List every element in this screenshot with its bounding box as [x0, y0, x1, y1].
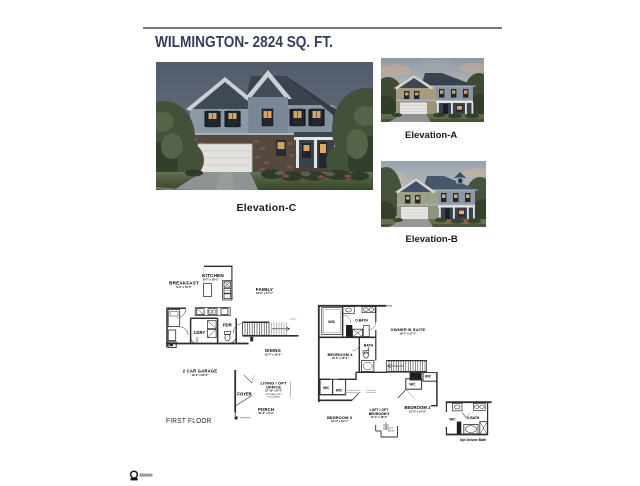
svg-text:DINING: DINING: [265, 348, 281, 353]
svg-text:WIC: WIC: [409, 382, 416, 386]
svg-text:BEDROOM 2: BEDROOM 2: [404, 405, 431, 410]
svg-text:2: 2: [368, 347, 370, 351]
svg-text:13'-3" x 12'-0": 13'-3" x 12'-0": [332, 356, 350, 360]
svg-text:18'-6" x 17'-1": 18'-6" x 17'-1": [256, 291, 274, 295]
svg-text:O.BATH: O.BATH: [355, 319, 368, 323]
svg-text:LDRY: LDRY: [194, 330, 205, 335]
svg-text:PDR: PDR: [223, 323, 232, 328]
svg-text:WIC: WIC: [328, 320, 335, 324]
svg-text:BEDROOM 5: BEDROOM 5: [369, 412, 390, 416]
svg-text:BREAKFAST: BREAKFAST: [169, 280, 199, 285]
svg-text:BEDROOM 4: BEDROOM 4: [327, 352, 353, 357]
svg-text:13'-2" x 12'-1": 13'-2" x 12'-1": [331, 419, 349, 423]
svg-text:PORCH: PORCH: [258, 407, 274, 412]
svg-text:13'-7" x 10'-0": 13'-7" x 10'-0": [265, 353, 283, 357]
svg-text:16'-7" x 17'-7": 16'-7" x 17'-7": [400, 332, 418, 336]
svg-text:8'-7" x 16'-1": 8'-7" x 16'-1": [203, 277, 219, 281]
svg-text:2 CAR GARAGE: 2 CAR GARAGE: [183, 369, 218, 374]
svg-text:13'-3" x 14'-3": 13'-3" x 14'-3": [409, 410, 427, 414]
svg-text:9'-9" x 13'-5": 9'-9" x 13'-5": [176, 285, 192, 289]
svg-text:FOYER: FOYER: [237, 392, 251, 397]
svg-text:19'-0" x 20'-0": 19'-0" x 20'-0": [192, 373, 210, 377]
svg-text:WIC: WIC: [449, 417, 456, 421]
svg-text:17'-4" x 18'-5": 17'-4" x 18'-5": [371, 415, 389, 419]
svg-text:Opt Deluxe Bath: Opt Deluxe Bath: [460, 438, 486, 442]
svg-text:O.BATH: O.BATH: [467, 416, 480, 420]
svg-text:12'-10" x 9'-4": 12'-10" x 9'-4": [265, 389, 283, 393]
svg-text:19'-0" x 6'-0": 19'-0" x 6'-0": [258, 411, 274, 415]
svg-text:FULL BATH: FULL BATH: [267, 395, 279, 398]
svg-text:WIC: WIC: [336, 388, 343, 392]
svg-text:FAMILY: FAMILY: [256, 287, 274, 292]
svg-text:WIC: WIC: [425, 375, 432, 379]
svg-text:WIC: WIC: [323, 386, 330, 390]
svg-text:DOOR: DOOR: [388, 430, 395, 432]
svg-text:BEDROOM 3: BEDROOM 3: [327, 415, 353, 420]
svg-text:OWNER B SUITE: OWNER B SUITE: [391, 327, 426, 332]
